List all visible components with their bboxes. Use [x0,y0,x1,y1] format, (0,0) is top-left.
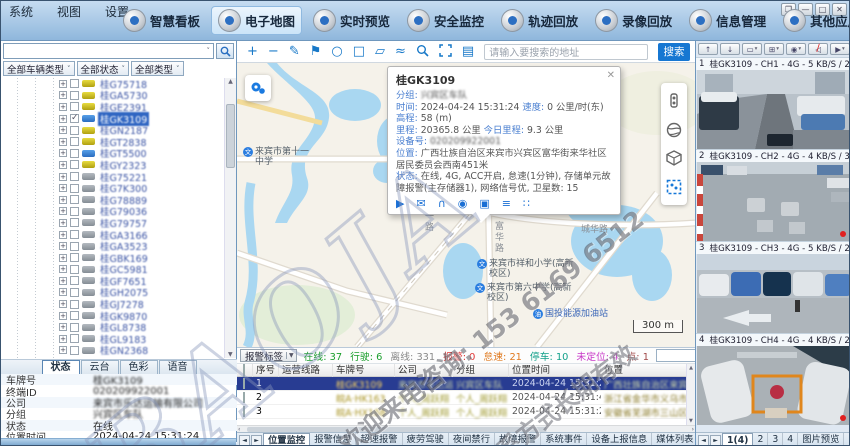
row-checkbox[interactable] [243,392,245,403]
layout-icon[interactable]: ⊞▾ [764,43,784,55]
filter-dropdown[interactable]: 全部车辆类型˅ [3,61,75,76]
map-search-input[interactable]: 请输入要搜索的地址 [484,44,648,60]
popup-value: 广西壮族自治区来宾市兴宾区富华街来华社区居民委员会西南451米 [396,148,607,171]
vehicle-search-button[interactable] [216,43,234,59]
vehicle-sidebar: ˅ 全部车辆类型˅ 全部状态˅ 全部类型˅ [1,41,237,446]
vehicle-icon [82,115,95,122]
marker-cluster-button[interactable] [245,75,271,101]
school-icon: 文 [477,259,487,269]
popup-row: 分组: 兴宾区车队 [396,90,612,102]
sidebar-panel-tab[interactable]: 语音 [159,360,197,374]
map-poi: 文 来宾市第六中学(高新校区) [475,283,579,303]
video-label[interactable]: 2桂GK3109 - CH2 - 4G - 4 KB/S / 320 KB [696,149,850,162]
expand-icon[interactable]: + [59,323,67,331]
vehicle-icon [82,161,95,168]
bottom-tab[interactable]: 位置监控 [263,433,310,446]
map-scale: 300 m [633,320,683,333]
message-icon[interactable]: ✉ [416,197,425,210]
vehicle-checkbox[interactable] [70,288,79,297]
menu-item[interactable]: 系统 [9,3,33,20]
save-map-icon[interactable]: ▤ [462,45,474,58]
nav-item-icon [689,9,712,32]
video-toolbar: ↑ ↓ ▭▾ ⊞▾ ◉▾ ◁ ▶▾ [696,43,850,56]
nav-item-icon [595,9,618,32]
vehicle-checkbox[interactable] [70,91,79,100]
nav-item-label: 录像回放 [622,11,672,30]
vehicle-checkbox[interactable] [70,149,79,158]
video-label[interactable]: 3桂GK3109 - CH3 - 4G - 5 KB/S / 266 KB [696,241,850,254]
up-icon[interactable]: ↑ [698,43,718,55]
video-label[interactable]: 1桂GK3109 - CH1 - 4G - 5 KB/S / 278 KB [696,57,850,70]
map-road-label: 城华路 [581,225,608,235]
map-poi: 文 来宾市第十一中学 [243,147,313,167]
expand-icon[interactable]: + [59,335,67,343]
tree-scrollbar[interactable]: ▲▼ [224,78,236,358]
popup-row: 里程: 20365.8 公里 今日里程: 9.3 公里 [396,125,612,137]
vehicle-checkbox[interactable] [70,126,79,135]
flag-icon[interactable]: ⚑ [310,45,322,58]
popup-label: 里程: [396,125,418,136]
vehicle-tree-item[interactable]: + 桂GN2368 [1,345,224,357]
school-icon: 文 [475,283,485,293]
popup-row: 位置: 广西壮族自治区来宾市兴宾区富华街来华社区居民委员会西南451米 [396,148,612,171]
fullscreen-icon[interactable] [439,44,452,60]
popup-value: 在线, 4G, ACC开启, 怠速(1分钟), 存储单元故障报警(主存储器1),… [396,171,611,194]
chevron-down-icon: ▼ [286,352,296,359]
expand-icon[interactable]: + [59,300,67,308]
bottom-tab[interactable]: 媒体列表 [652,433,695,446]
vehicle-checkbox[interactable] [70,230,79,239]
table-scrollbar[interactable]: ▲▼ [686,364,695,425]
popup-value: 020209922001 [430,136,501,147]
nav-item-icon [313,9,336,32]
vehicle-icon [82,103,95,110]
vehicle-checkbox[interactable] [70,242,79,251]
vehicle-checkbox[interactable] [70,276,79,285]
expand-icon[interactable]: + [59,277,67,285]
expand-icon[interactable]: + [59,138,67,146]
popup-label: 高程: [396,113,418,124]
map-control-panel [661,83,687,205]
expand-icon[interactable]: + [59,219,67,227]
scrollbar-thumb[interactable] [226,104,235,168]
popup-label: 设备号: [396,136,427,147]
photo-icon[interactable]: ◉ [458,197,468,210]
bottom-tab[interactable]: 报警信息 [310,433,356,446]
map-toolbar: + − ✎ ⚑ ○ □ ▱ ≈ ▤ 请输入要搜索的地址 搜索 [237,41,695,63]
bottom-tab[interactable]: 超速报警 [356,433,402,446]
vehicle-checkbox[interactable] [70,172,79,181]
header: 系统视图设置 ❐—□✕ 智慧看板 电子地图 实时预览 [1,1,850,41]
expand-icon[interactable]: + [59,312,67,320]
nav-item-icon [218,9,241,32]
search-icon [220,46,231,57]
tab-scroll-right-icon[interactable]: ► [710,435,721,446]
popup-value: 9.3 公里 [527,125,563,136]
nav-item[interactable]: 智慧看板 [117,7,206,34]
vehicle-icon [82,289,95,296]
map-search-button[interactable]: 搜索 [658,43,690,61]
rectangle-draw-icon[interactable]: □ [353,45,365,58]
monitor-table: 序号 运营线路 车牌号 公司 分组 位置时间 位置 1 桂GK3109 来宾市乐… [237,364,695,425]
video-tab[interactable]: 1(4) [722,433,753,446]
nav-item-label: 安全监控 [434,11,484,30]
status-count: 点: 1 [626,349,648,363]
vehicle-icon [82,243,95,250]
status-count: 未定位: 4 [576,349,618,363]
status-count: 报警: 0 [443,349,475,363]
vehicle-checkbox[interactable] [70,195,79,204]
traffic-icon[interactable] [667,93,681,109]
bottom-tab[interactable]: 夜间禁行 [449,433,495,446]
popup-row: 状态: 在线, 4G, ACC开启, 怠速(1分钟), 存储单元故障报警(主存储… [396,171,612,194]
vehicle-icon [82,324,95,331]
screen-icon[interactable]: ▭▾ [742,43,762,55]
filter-dropdown[interactable]: 全部状态˅ [77,61,130,76]
expand-icon[interactable]: + [59,265,67,273]
vehicle-icon [82,266,95,273]
route-icon[interactable]: ≈ [395,45,406,58]
vehicle-checkbox[interactable] [70,311,79,320]
popup-label: 速度: [522,102,544,113]
row-checkbox[interactable] [243,406,245,417]
expand-icon[interactable]: + [59,103,67,111]
nav-item-label: 轨迹回放 [528,11,578,30]
video-feed-ch2[interactable] [697,162,850,241]
video-feed-ch1[interactable] [697,70,850,149]
vehicle-checkbox[interactable] [70,160,79,169]
media-icon[interactable]: ▣ [479,197,489,210]
status-count: 停车: 10 [530,349,569,363]
play-icon[interactable]: ▶▾ [830,43,850,55]
expand-icon[interactable]: + [59,231,67,239]
popup-row: 高程: 58 (m) [396,113,612,125]
row-checkbox[interactable] [243,378,245,389]
nav-item[interactable]: 电子地图 [211,6,302,35]
cube-icon[interactable] [666,150,682,166]
vehicle-checkbox[interactable] [70,300,79,309]
tab-scroll-left-icon[interactable]: ◄ [239,435,250,446]
expand-icon[interactable]: + [59,173,67,181]
listen-icon[interactable]: ∩ [438,197,446,210]
map-poi: 文 来宾市祥和小学(高新校区) [477,259,581,279]
vehicle-checkbox[interactable] [70,334,79,343]
sidebar-panel-tabs: 状态云台色彩语音 [1,359,237,374]
cluster-icon[interactable] [666,179,682,195]
video-panel: ↑ ↓ ▭▾ ⊞▾ ◉▾ ◁ ▶▾ 1桂GK3109 - CH1 - 4G - … [695,41,850,446]
status-bar: 报警标签▼ 在线: 37 行驶: 6 离线: 331 报警: 0 [237,347,695,364]
video-tab[interactable]: 4 [783,433,798,446]
video-tab[interactable]: 3 [768,433,783,446]
popup-arrow [472,214,490,223]
vehicle-checkbox[interactable] [70,102,79,111]
chevron-down-icon: ˅ [207,47,211,55]
down-icon[interactable]: ↓ [720,43,740,55]
measure-icon[interactable]: ✎ [289,45,300,58]
map-region: + − ✎ ⚑ ○ □ ▱ ≈ ▤ 请输入要搜索的地址 搜索 [237,41,695,347]
vehicle-icon [82,196,95,203]
school-icon: 文 [243,147,253,157]
pin-icon [250,80,266,96]
vehicle-icon [82,219,95,226]
vehicle-icon [82,80,95,87]
alarm-tag-button[interactable]: 报警标签▼ [240,349,297,362]
video-icon[interactable]: ▶ [396,197,404,210]
close-icon[interactable]: ✕ [607,70,615,81]
snapshot-icon[interactable]: ◉▾ [786,43,806,55]
vehicle-search-input[interactable]: ˅ [3,43,214,59]
expand-icon[interactable]: + [59,346,67,354]
map-canvas[interactable]: 文 来宾市第十一中学 文 来宾市兴宾区实验小学(华侨校区) 富华路 华侨一路 文… [237,63,695,347]
popup-action-bar: ▶ ✉ ∩ ◉ ▣ ≡ ∷ [396,197,612,210]
popup-label: 时间: [396,102,418,113]
video-feed-ch4[interactable] [697,346,850,425]
popup-row: 设备号: 020209922001 [396,136,612,148]
video-feed-ch3[interactable] [697,254,850,333]
expand-icon[interactable]: + [59,161,67,169]
nav-item-label: 信息管理 [716,11,766,30]
chevron-down-icon: ˅ [122,65,126,73]
status-count: 怠速: 21 [483,349,522,363]
status-count: 离线: 331 [390,349,435,363]
map-poi: 油 国投能源加油站 [533,309,608,319]
vehicle-checkbox[interactable] [70,265,79,274]
vehicle-checkbox[interactable] [70,323,79,332]
nav-item[interactable]: 信息管理 [683,7,772,34]
expand-icon[interactable]: + [59,196,67,204]
report-icon[interactable]: ≡ [502,197,511,210]
vehicle-icon [82,277,95,284]
vehicle-checkbox[interactable] [70,346,79,355]
status-count: 行驶: 6 [350,349,382,363]
search-area-icon[interactable] [416,44,429,60]
vehicle-icon [82,138,95,145]
zoom-in-icon[interactable]: + [247,45,258,58]
video-tab[interactable]: 图片预览 [798,433,844,446]
popup-value: 58 (m) [421,113,452,124]
popup-label: 状态: [396,171,418,182]
nav-item-label: 智慧看板 [150,11,200,30]
nav-item[interactable]: 实时预览 [307,7,396,34]
vehicle-icon [82,150,95,157]
popup-label: 分组: [396,90,418,101]
sidebar-footer [1,438,236,446]
sidebar-panel-tab[interactable]: 状态 [42,360,80,374]
vehicle-icon [82,127,95,134]
vehicle-checkbox[interactable] [70,79,79,88]
expand-icon[interactable]: + [59,288,67,296]
circle-draw-icon[interactable]: ○ [331,45,342,58]
status-count: 在线: 37 [304,349,343,363]
popup-value: 兴宾区车队 [421,90,468,101]
bottom-tab-strip: ◄ ► 位置监控报警信息超速报警疲劳驾驶夜间禁行故障报警系统事件设备上报信息媒体… [237,432,695,446]
bottom-tab[interactable]: 故障报警 [495,433,541,446]
detail-value: 兴宾区车队 [93,406,143,421]
main-nav: 智慧看板 电子地图 实时预览 安全监控 [117,6,850,35]
vehicle-checkbox[interactable] [70,218,79,227]
select-all-checkbox[interactable] [243,364,245,377]
vehicle-icon [82,92,95,99]
vehicle-checkbox[interactable] [70,184,79,193]
nav-item-icon [407,9,430,32]
nav-item-icon [783,9,806,32]
nav-item-icon [501,9,524,32]
expand-icon[interactable]: + [59,254,67,262]
vehicle-checkbox[interactable] [70,137,79,146]
popup-label: 位置: [396,148,418,159]
popup-row: 时间: 2024-04-24 15:31:24 速度: 0 公里/时(东) [396,102,612,114]
expand-icon[interactable]: + [59,115,67,123]
tab-scroll-right-icon[interactable]: ► [251,435,262,446]
mute-icon[interactable]: ◁ [808,43,828,55]
vehicle-checkbox[interactable] [70,207,79,216]
vehicle-info-popup: 桂GK3109 ✕ 分组: 兴宾区车队 时间: 202 [387,66,621,215]
expand-icon[interactable]: + [59,126,67,134]
expand-icon[interactable]: + [59,149,67,157]
bottom-tab[interactable]: 设备上报信息 [587,433,652,446]
horizontal-scrollbar[interactable]: ‹› [237,425,695,432]
bottom-tab[interactable]: 疲劳驾驶 [403,433,449,446]
expand-icon[interactable]: + [59,80,67,88]
vehicle-checkbox[interactable] [70,253,79,262]
nav-item-label: 实时预览 [340,11,390,30]
video-label[interactable]: 4桂GK3109 - CH4 - 4G - 4 KB/S / 238 KB [696,333,850,346]
filter-dropdown[interactable]: 全部类型˅ [131,61,184,76]
chevron-down-icon: ˅ [176,65,180,73]
table-row[interactable]: 1 桂GK3109 来宾市乐达运输有限公司 兴宾区车队 2024-04-24 1… [237,377,695,391]
sidebar-panel-tab[interactable]: 色彩 [120,360,158,374]
vehicle-icon [82,185,95,192]
video-tab-strip: ◄ ► 1(4)234图片预览 [696,432,850,446]
nav-item[interactable]: 轨迹回放 [495,7,584,34]
vehicle-icon [82,254,95,261]
vehicle-icon [82,312,95,319]
vehicle-icon [82,347,95,354]
vehicle-filters: 全部车辆类型˅ 全部状态˅ 全部类型˅ [3,61,184,76]
table-header: 序号 运营线路 车牌号 公司 分组 位置时间 位置 [237,364,695,377]
video-tab[interactable]: 2 [753,433,768,446]
popup-value: 20365.8 公里 [421,125,481,136]
nav-item[interactable]: 安全监控 [401,7,490,34]
nav-item[interactable]: 其他应用 [777,7,850,34]
popup-title: 桂GK3109 [396,72,612,88]
menu-item[interactable]: 视图 [57,3,81,20]
sidebar-panel-tab[interactable]: 云台 [81,360,119,374]
table-row[interactable]: 3 皖A·HX168 个人_周跃翔 个人_周跃翔 2024-04-24 15:3… [237,405,695,419]
nav-item-label: 电子地图 [245,11,295,30]
vehicle-tree: + 桂G75718 + 桂GA5730 + 桂GE2391 [1,78,224,358]
menu-bar: 系统视图设置 [9,3,129,20]
gas-station-icon: 油 [533,309,543,319]
more-icon[interactable]: ∷ [523,197,530,210]
expand-icon[interactable]: + [59,242,67,250]
vehicle-checkbox[interactable] [70,114,79,123]
vehicle-icon [82,335,95,342]
vehicle-details: 车牌号 桂GK3109 终端ID 020209922001 公司 来宾市乐达运输… [1,374,237,446]
polygon-draw-icon[interactable]: ▱ [375,45,385,58]
nav-item[interactable]: 录像回放 [589,7,678,34]
vehicle-plate: 桂GN2368 [98,343,150,357]
vehicle-icon [82,231,95,238]
popup-label: 今日里程: [484,125,524,136]
expand-icon[interactable]: + [59,91,67,99]
chevron-down-icon: ˅ [67,65,71,73]
vehicle-icon [82,208,95,215]
nav-item-icon [123,9,146,32]
bottom-tab[interactable]: 系统事件 [541,433,587,446]
popup-value: 0 公里/时(东) [547,102,603,113]
expand-icon[interactable]: + [59,184,67,192]
vehicle-monitoring-app: 系统视图设置 ❐—□✕ 智慧看板 电子地图 实时预览 [0,0,850,446]
vehicle-icon [82,173,95,180]
zoom-out-icon[interactable]: − [268,45,279,58]
expand-icon[interactable]: + [59,207,67,215]
map-road-label: 富华路 [493,221,503,254]
table-row[interactable]: 2 皖A·HK163 个人_周跃翔 个人_周跃翔 2024-04-24 15:3… [237,391,695,405]
tab-scroll-left-icon[interactable]: ◄ [698,435,709,446]
satellite-icon[interactable] [666,122,682,138]
popup-value: 2024-04-24 15:31:24 [421,102,520,113]
nav-item-label: 其他应用 [810,11,850,30]
vehicle-icon [82,301,95,308]
